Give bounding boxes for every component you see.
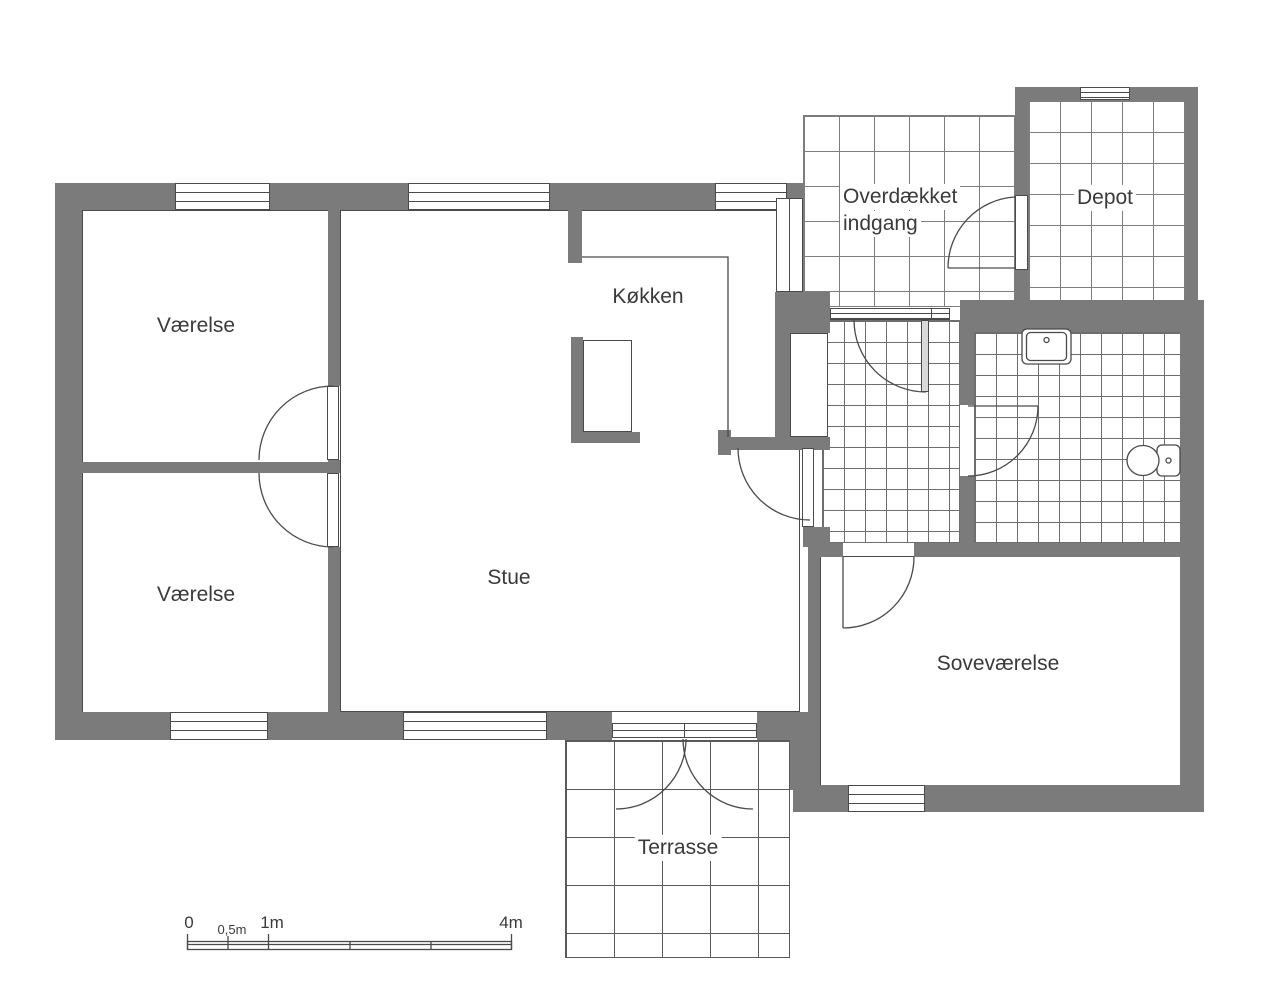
- wall: [960, 332, 974, 405]
- wall: [328, 460, 340, 473]
- wall: [960, 300, 1204, 332]
- window: [175, 183, 270, 210]
- wall: [571, 432, 640, 443]
- wall: [328, 210, 340, 386]
- wall: [571, 337, 583, 443]
- room-label-stue: Stue: [487, 565, 530, 591]
- wall: [55, 183, 82, 740]
- hall-niche: [790, 333, 828, 437]
- wall: [1015, 100, 1028, 195]
- room-label-overdaekket-line1: Overdækket: [840, 184, 960, 210]
- tile-floor-bathroom: [974, 332, 1183, 543]
- room-label-vaerelse-top: Værelse: [157, 313, 235, 339]
- door-leaf: [327, 473, 339, 547]
- wall: [1185, 87, 1198, 303]
- kitchen-side-door: [776, 198, 803, 292]
- wall: [55, 183, 175, 210]
- wall: [547, 712, 612, 740]
- scale-label-4m: 4m: [499, 913, 523, 933]
- wall: [1180, 308, 1204, 812]
- kitchen-island: [583, 340, 632, 432]
- room-label-depot: Depot: [1074, 185, 1136, 211]
- terrace-door-divider: [684, 723, 685, 738]
- window: [408, 183, 550, 210]
- room-label-koekken: Køkken: [612, 284, 683, 310]
- window: [1080, 87, 1130, 100]
- wall: [55, 712, 170, 740]
- wall: [268, 712, 403, 740]
- window: [403, 712, 547, 740]
- front-door-threshold-divider: [931, 308, 932, 320]
- wall: [775, 333, 790, 443]
- door-leaf: [802, 448, 814, 527]
- tile-floor-hall: [822, 320, 960, 543]
- wall: [550, 183, 715, 210]
- scale-label-1m: 1m: [260, 913, 284, 933]
- front-door-leaf: [921, 320, 929, 392]
- room-label-vaerelse-bottom: Værelse: [157, 582, 235, 608]
- wall: [328, 547, 340, 713]
- wall: [808, 547, 820, 790]
- wall: [80, 462, 338, 473]
- front-door-threshold: [830, 308, 950, 320]
- room-label-terrasse: Terrasse: [635, 835, 722, 861]
- wall: [270, 183, 408, 210]
- floor-plan: Værelse Værelse Køkken Stue Soveværelse …: [0, 0, 1267, 1000]
- window: [170, 712, 268, 740]
- wall: [914, 543, 1196, 557]
- wall: [960, 476, 974, 543]
- window: [848, 785, 925, 812]
- wall: [775, 292, 830, 333]
- wall: [793, 785, 848, 812]
- room-label-overdaekket-line2: indgang: [840, 211, 921, 237]
- door-leaf: [327, 386, 339, 460]
- room-label-sovevaerelse: Soveværelse: [937, 651, 1060, 677]
- wall: [757, 712, 815, 740]
- wall: [1015, 87, 1080, 100]
- room-outline-stue: [340, 210, 800, 712]
- scale-label-05m: 0,5m: [218, 922, 247, 937]
- wall: [925, 785, 1204, 812]
- wall: [1015, 270, 1028, 307]
- scale-label-0: 0: [184, 913, 193, 933]
- wall: [568, 210, 582, 263]
- door-gap: [1015, 195, 1028, 270]
